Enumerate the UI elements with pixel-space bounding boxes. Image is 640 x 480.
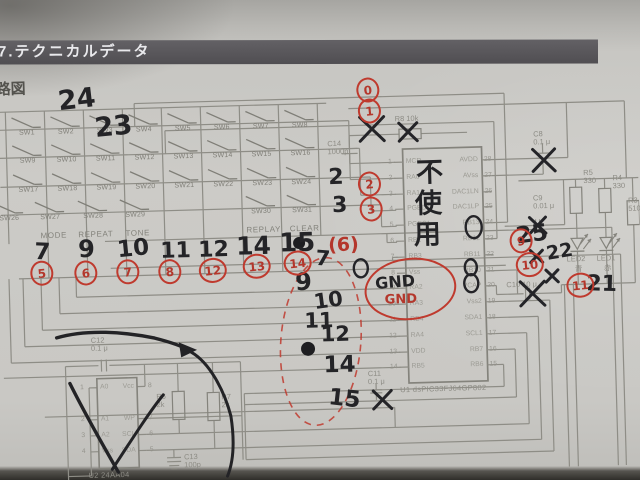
arrow-tip-icon (616, 238, 620, 242)
handwritten-number: 9 (78, 237, 95, 261)
switch-label: SW13 (174, 153, 194, 161)
wire (129, 142, 150, 153)
wire (13, 174, 34, 185)
component-label-r3: R3 510 (628, 196, 640, 213)
wire (44, 111, 48, 243)
wire (109, 362, 240, 366)
wire (491, 157, 568, 159)
ic-pin-label: VCAP (439, 282, 481, 291)
arrow-tip-icon (587, 239, 591, 243)
ic-pin-label: RB3 (408, 253, 421, 261)
wire (78, 201, 99, 212)
ic-pin-label: RA4 (411, 332, 424, 340)
ic-pin-label: RB7 (441, 346, 483, 355)
switch-label: SW26 (0, 215, 19, 223)
ic-pin-number: 2 (382, 174, 392, 182)
wire (0, 103, 326, 112)
wire (59, 278, 60, 314)
wire (563, 180, 564, 225)
handwritten-annotations: 242323791011121415791011121415252221GND不… (0, 0, 633, 8)
switch-label: SW10 (57, 156, 77, 164)
ic-pin-number: 1 (80, 384, 84, 392)
ic-pin-label: A0 (100, 383, 109, 391)
component-body (570, 187, 583, 213)
switch-label: SW12 (135, 154, 155, 162)
ic-pin-number: 3 (383, 190, 393, 198)
ic-pin-number: 1 (382, 158, 392, 166)
scribble-stroke (57, 330, 190, 354)
ic-pin-label: A1 (101, 415, 110, 423)
ic-pin-number: 8 (148, 382, 152, 390)
printed-page: 路図 SW1SW2SW3SW4SW5SW6SW7SW8SW9SW10SW11SW… (0, 0, 640, 480)
wire (495, 316, 538, 317)
red-circled-number: 7 (115, 258, 140, 285)
switch-label: SW5 (175, 125, 191, 133)
wire (169, 170, 190, 181)
switch-label: SW15 (252, 151, 272, 159)
ic-pin-label: A2 (101, 431, 110, 439)
ic-pin-number: 24 (485, 219, 493, 227)
ic-pin-label: RB6 (441, 361, 483, 370)
switch-label: SW7 (253, 123, 269, 131)
wire (168, 141, 189, 152)
wire (0, 203, 15, 214)
switch-label: SW11 (96, 155, 116, 163)
wire (634, 225, 636, 283)
ic-pin-number: 6 (384, 237, 394, 245)
ic-pin-number: 7 (384, 253, 394, 261)
wire (212, 362, 213, 392)
ic-pin-label: Vss2 (440, 298, 482, 307)
ic-pin-number: 6 (149, 430, 153, 438)
wire (495, 300, 550, 302)
handwritten-number: 22 (545, 241, 574, 264)
wire (239, 106, 243, 238)
ic-pin-label: RB11 (438, 251, 480, 260)
photo-of-schematic-page: 7.テクニカルデータ 路図 SW1SW2SW3SW4SW5SW6SW7SW8SW… (0, 0, 640, 480)
ic-pin-number: 5 (150, 446, 154, 454)
wire (65, 367, 68, 480)
wire (11, 117, 32, 128)
wire (497, 294, 524, 295)
wire (527, 333, 530, 424)
wire (23, 279, 25, 347)
component-label-r5: R5 330 (583, 169, 596, 186)
wire (494, 270, 517, 271)
wire (246, 139, 267, 150)
wire (51, 144, 72, 155)
wire (134, 104, 135, 127)
ic-pin-label: DAC1LN (437, 188, 479, 197)
switch-label: SW14 (213, 152, 233, 160)
handwritten-number: 24 (57, 84, 97, 115)
wire (130, 171, 151, 182)
switch-label: SW29 (125, 211, 145, 219)
black-blob-mark (301, 342, 315, 356)
component-label-c10: C10 10 μ (506, 280, 537, 289)
wire (278, 105, 282, 237)
x-cross-out-mark (533, 149, 556, 172)
component-label-c14: C14 1000p (327, 140, 348, 157)
wire (41, 278, 42, 330)
ic-pin-number: 27 (484, 172, 492, 180)
x-cross-out-mark (399, 123, 417, 141)
ic-pin-number: 4 (82, 448, 86, 456)
ic-pin-label: RB5 (411, 363, 424, 371)
wire (177, 363, 178, 391)
page-sub-label: 路図 (0, 78, 26, 100)
component-label-c12: C12 0.1 μ (91, 336, 108, 353)
switch-label: SW4 (136, 126, 152, 134)
wire (214, 420, 215, 448)
wire (395, 407, 396, 427)
ic-pin-number: 4 (383, 205, 393, 213)
switch-label: SW6 (214, 124, 230, 132)
wire (580, 234, 588, 244)
wire (583, 239, 591, 249)
x-cross-out-mark (373, 391, 391, 409)
switch-label: SW1 (19, 129, 35, 137)
ic-pin-number: 18 (488, 314, 496, 322)
wire (12, 145, 33, 156)
wire (60, 304, 399, 313)
wire (348, 101, 624, 109)
wire (538, 316, 541, 439)
wire (624, 101, 626, 178)
wire (50, 116, 71, 127)
switch-label: SW2 (58, 128, 74, 136)
wire (612, 227, 619, 465)
component-body (172, 391, 185, 419)
wire (244, 394, 246, 460)
wire (167, 113, 188, 124)
ic-pin-number: 16 (489, 346, 497, 354)
ic-pin-label: RB10 (439, 267, 481, 276)
red-circled-number: 10 (515, 251, 545, 279)
ic-pin-label: RB13 (437, 219, 479, 228)
ic-pin-label: SCL1 (441, 330, 483, 339)
red-circled-number: 3 (358, 195, 383, 222)
wire (573, 284, 578, 466)
wire (91, 172, 112, 183)
switch-label: SW17 (18, 186, 38, 194)
wire (147, 439, 542, 450)
ic-u1-name: U1 dsPIC33FJ64GP802 (400, 384, 486, 395)
wire (612, 238, 620, 248)
handwritten-number: 12 (320, 324, 350, 346)
wire (566, 103, 568, 158)
component-body (599, 188, 612, 212)
component-label-c13: C13 100p (184, 453, 201, 470)
switch-label: SW21 (174, 182, 194, 190)
wire (621, 254, 627, 465)
wire (515, 349, 516, 397)
wire (349, 134, 399, 135)
red-handwritten-text: GND (385, 293, 418, 307)
handwritten-not-used-kanji: 不 (416, 159, 444, 187)
wire (496, 349, 515, 350)
handwritten-number: 2 (328, 167, 344, 189)
switch-label: SW19 (96, 184, 116, 192)
wire (89, 388, 91, 476)
handwritten-number: 14 (323, 354, 356, 378)
red-circled-number: 6 (73, 259, 98, 286)
component-label-r8: R8 10k (395, 115, 419, 124)
red-handwritten-text: (6) (328, 235, 359, 255)
wire (144, 364, 145, 386)
ic-pin-number: 19 (488, 298, 496, 306)
component-label-c8: C8 0.1 μ (533, 130, 550, 147)
ic-pin-number: 3 (81, 432, 85, 440)
red-circled-number: 5 (29, 260, 54, 287)
wire (200, 107, 204, 239)
wire (247, 168, 268, 179)
wire (246, 451, 554, 460)
ic-pin-number: 20 (487, 282, 495, 290)
wire (146, 424, 529, 435)
wire (609, 233, 617, 243)
wire (286, 167, 307, 178)
wire (246, 196, 267, 207)
ic-pin-label: DAC1LP (437, 203, 479, 212)
wire (349, 121, 351, 180)
ic-pin-number: 14 (387, 363, 397, 371)
ic-pin-number: 11 (386, 316, 396, 324)
ic-pin-label: SDA1 (440, 314, 482, 323)
switch-label: SW23 (252, 180, 272, 188)
wire (532, 293, 562, 294)
wire (207, 140, 228, 151)
wire (52, 173, 73, 184)
switch-label: SW9 (20, 157, 36, 165)
red-circled-number: 1 (357, 97, 382, 124)
wire (504, 364, 505, 386)
wire (161, 108, 165, 240)
wire (134, 93, 504, 103)
red-circled-number: 2 (357, 170, 382, 197)
switch-label: SW28 (83, 212, 103, 220)
component-label-c11: C11 0.1 μ (368, 370, 385, 387)
wire (83, 110, 87, 242)
component-label-r6: R6 2k (156, 393, 166, 410)
wire (9, 279, 11, 363)
wire (285, 138, 306, 149)
ic-pin-number: 28 (484, 156, 492, 164)
scribble-arrowhead (179, 342, 197, 357)
wire (245, 397, 517, 405)
ic-pin-number: 7 (149, 414, 153, 422)
wire (496, 333, 527, 334)
ic-u2-name: U2 24AA04 (88, 471, 129, 480)
wire (35, 202, 56, 213)
arrow-tip-icon (613, 233, 617, 237)
wire (165, 131, 166, 154)
ic-pin-number: 21 (487, 267, 495, 275)
wire (284, 110, 305, 121)
component-label-led1: LED1 (597, 254, 616, 263)
x-cross-out-mark (546, 270, 558, 282)
wire (287, 195, 308, 206)
printed-labels: SW1SW2SW3SW4SW5SW6SW7SW8SW9SW10SW11SW12S… (0, 0, 633, 8)
wire (146, 416, 242, 419)
ic-pin-number: 13 (387, 348, 397, 356)
switch-label: SW30 (251, 208, 271, 216)
component-body (399, 129, 421, 140)
ic-pin-number: 17 (489, 330, 497, 338)
switch-label: SW8 (292, 122, 308, 130)
wire (576, 213, 577, 238)
wire (421, 132, 467, 133)
wire (491, 174, 543, 175)
switch-label: SW16 (291, 150, 311, 158)
wire (564, 285, 569, 467)
component-label-c9: C9 0.01 μ (533, 194, 554, 211)
handwritten-number: GND (375, 273, 416, 292)
ic-pin-label: VDD (411, 348, 426, 356)
ic-pin-number: 25 (485, 203, 493, 211)
scribble-stroke (70, 382, 118, 473)
ic-pin-label: RB12 (438, 235, 480, 244)
component-label-r7: R7 2k (221, 393, 231, 410)
ic-pin-number: 23 (486, 235, 494, 243)
wire (317, 103, 321, 235)
wire (208, 169, 229, 180)
ic-pin-label: RB4 (410, 316, 423, 324)
ic-pin-label: Vss (102, 447, 114, 455)
handwritten-not-used-kanji: 使 (415, 190, 443, 218)
wire (90, 143, 111, 154)
ic-pin-number: 15 (489, 361, 497, 369)
component-body (207, 392, 220, 420)
wire (120, 199, 141, 210)
ic-pin-label: WP (113, 415, 135, 423)
switch-label: SW27 (40, 214, 60, 222)
switch-label: SW24 (291, 179, 311, 187)
wire (504, 93, 508, 222)
wire (240, 362, 243, 460)
wire (206, 112, 227, 123)
ic-pin-number: 12 (387, 332, 397, 340)
handwritten-number: 3 (332, 195, 348, 217)
ic-pin-number: 22 (486, 251, 494, 259)
wire (245, 111, 266, 122)
ic-pin-label: SCL (113, 431, 135, 439)
switch-label: SW20 (135, 183, 155, 191)
handwritten-number: 10 (116, 236, 150, 262)
wire (77, 288, 399, 297)
ic-pin-label: SDA (114, 447, 136, 455)
ic-pin-number: 26 (485, 188, 493, 196)
led-diode-icon (571, 238, 583, 249)
handwritten-not-used-kanji: 用 (414, 221, 442, 249)
wire (5, 112, 9, 244)
switch-label: SW18 (57, 185, 77, 193)
ic-pin-label: Vcc (112, 383, 134, 391)
ic-pin-number: 5 (384, 221, 394, 229)
switch-label: SW31 (292, 207, 312, 215)
black-scribble-strokes (57, 329, 235, 480)
black-loop-mark (354, 259, 368, 277)
arrow-tip-icon (584, 234, 588, 238)
ic-pin-number: 2 (81, 416, 85, 424)
led-diode-icon (600, 237, 612, 248)
handwritten-number: 15 (327, 386, 361, 412)
switch-label: SW22 (213, 181, 233, 189)
wire (65, 366, 98, 367)
component-label-r4: R4 330 (612, 174, 625, 191)
wire (494, 122, 497, 239)
wire (605, 212, 606, 237)
handwritten-number: 23 (94, 111, 134, 142)
wire (550, 300, 554, 451)
